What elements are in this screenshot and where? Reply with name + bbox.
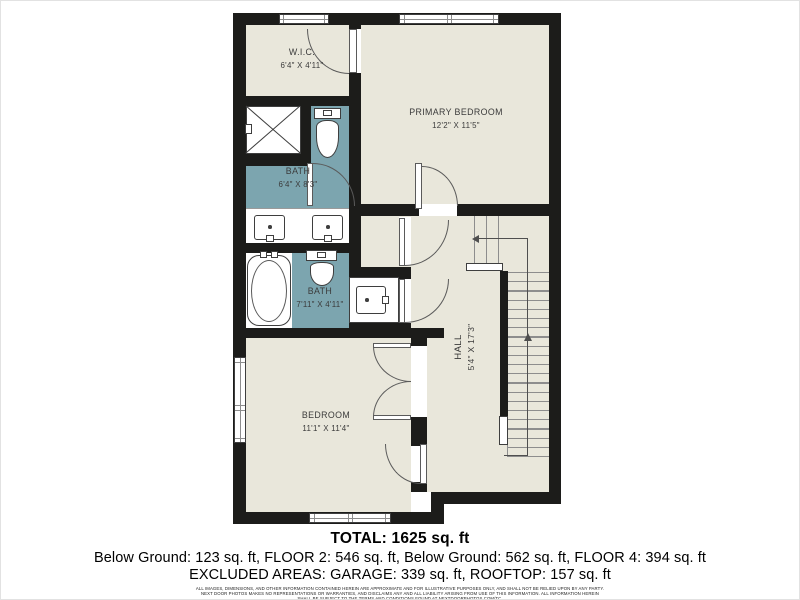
stair-tread-line bbox=[508, 428, 549, 429]
bathtub-faucet-icon bbox=[260, 251, 267, 258]
wall-bottom-right bbox=[431, 492, 561, 504]
stair-walk-line-horizontal bbox=[479, 238, 528, 239]
window-divider bbox=[235, 405, 245, 406]
vanity-sink-left-drain bbox=[268, 225, 272, 229]
niche-sink-faucet bbox=[382, 296, 389, 304]
window-divider bbox=[348, 514, 349, 522]
stair-tread-line bbox=[508, 364, 549, 365]
wall-bedroom-top bbox=[233, 328, 444, 338]
window-divider bbox=[314, 514, 315, 522]
wall-step-connector bbox=[431, 492, 444, 524]
room-name: BEDROOM bbox=[302, 409, 350, 422]
toilet-lower-button bbox=[317, 252, 326, 258]
window-pane-line bbox=[400, 19, 498, 20]
room-name: BATH bbox=[296, 285, 343, 298]
stair-tread-line bbox=[508, 272, 549, 273]
bathtub-inner bbox=[251, 260, 287, 322]
stair-bottom-jamb bbox=[499, 416, 508, 445]
window-divider bbox=[447, 15, 448, 23]
wall-hall-left-b bbox=[411, 417, 427, 446]
window-divider bbox=[404, 15, 405, 23]
window-divider bbox=[385, 514, 386, 522]
stair-tread-line bbox=[508, 419, 549, 420]
shower-head-icon bbox=[245, 124, 252, 134]
area-summary: TOTAL: 1625 sq. ft Below Ground: 123 sq.… bbox=[1, 530, 799, 600]
stair-tread-line bbox=[508, 373, 549, 374]
vanity-sink-right-faucet bbox=[324, 235, 332, 242]
window-divider bbox=[235, 438, 245, 439]
stair-tread-line bbox=[508, 382, 549, 383]
total-area-text: TOTAL: 1625 sq. ft bbox=[1, 530, 799, 548]
niche-sink-drain bbox=[365, 298, 369, 302]
room-dims: 7'11" X 4'11" bbox=[296, 298, 343, 311]
room-label-bedroom: BEDROOM 11'1" X 11'4" bbox=[302, 409, 350, 435]
stair-tread-line bbox=[508, 309, 549, 310]
bedroom-door-leaf bbox=[420, 444, 427, 484]
room-dims: 11'1" X 11'4" bbox=[302, 422, 350, 435]
wic-door-leaf bbox=[349, 29, 357, 73]
room-name: PRIMARY BEDROOM bbox=[409, 106, 503, 119]
primary-door-leaf bbox=[415, 163, 422, 209]
closet-door-jamb bbox=[411, 346, 427, 417]
floor-areas-text: Below Ground: 123 sq. ft, FLOOR 2: 546 s… bbox=[1, 550, 799, 566]
stair-up-arrow-left-icon bbox=[472, 235, 479, 243]
window-divider bbox=[493, 15, 494, 23]
excluded-areas-text: EXCLUDED AREAS: GARAGE: 339 sq. ft, ROOF… bbox=[1, 567, 799, 583]
stair-tread-line bbox=[508, 290, 549, 291]
stair-landing-nosing bbox=[466, 263, 503, 271]
window-pane-line bbox=[240, 358, 241, 442]
stair-tread-line bbox=[508, 300, 549, 301]
disclaimer-text: ALL IMAGES, DIMENSIONS, AND OTHER INFORM… bbox=[1, 586, 799, 600]
window-divider bbox=[235, 410, 245, 411]
stair-tread-line bbox=[508, 410, 549, 411]
stair-up-arrow-icon bbox=[524, 333, 532, 341]
window-divider bbox=[451, 15, 452, 23]
window-divider bbox=[235, 362, 245, 363]
stair-tread-line bbox=[508, 318, 549, 319]
window-divider bbox=[283, 15, 284, 23]
stair-tread-line bbox=[508, 346, 549, 347]
room-label-bath-lower: BATH 7'11" X 4'11" bbox=[296, 285, 343, 311]
room-name: W.I.C. bbox=[280, 46, 323, 59]
window-top-primary bbox=[399, 14, 499, 24]
room-dims: 6'4" X 4'11" bbox=[280, 59, 323, 72]
room-name: HALL bbox=[452, 324, 465, 371]
stair-tread-line bbox=[498, 216, 499, 264]
room-dims: 5'4" X 17'3" bbox=[465, 324, 478, 371]
room-label-wic: W.I.C. 6'4" X 4'11" bbox=[280, 46, 323, 72]
stair-tread-line bbox=[508, 438, 549, 439]
window-bottom-bedroom bbox=[309, 513, 391, 523]
stair-tread-line bbox=[508, 327, 549, 328]
room-label-bath-upper: BATH 6'4" X 8'3" bbox=[279, 165, 318, 191]
window-pane-line bbox=[280, 19, 328, 20]
wall-niche-bottom bbox=[361, 323, 411, 329]
stair-tread-line bbox=[508, 447, 549, 448]
vanity-sink-left-faucet bbox=[266, 235, 274, 242]
stair-tread-line bbox=[508, 401, 549, 402]
floor-plan-page: W.I.C. 6'4" X 4'11" PRIMARY BEDROOM 12'2… bbox=[0, 0, 800, 600]
stair-tread-line bbox=[508, 392, 549, 393]
room-dims: 6'4" X 8'3" bbox=[279, 178, 318, 191]
stair-walk-line-vertical bbox=[527, 238, 528, 456]
room-name: BATH bbox=[279, 165, 318, 178]
window-pane-line bbox=[310, 518, 390, 519]
window-left-bedroom bbox=[234, 357, 246, 443]
wall-wic-bottom bbox=[246, 96, 349, 106]
stair-tread-line bbox=[486, 216, 487, 264]
vanity-sink-right-drain bbox=[326, 225, 330, 229]
room-label-hall: HALL 5'4" X 17'3" bbox=[452, 324, 478, 371]
window-divider bbox=[352, 514, 353, 522]
wall-hall-left-a bbox=[411, 338, 427, 346]
wall-hall-top-right bbox=[457, 204, 549, 216]
wall-left bbox=[233, 13, 246, 524]
window-divider bbox=[324, 15, 325, 23]
stair-tread-line bbox=[508, 355, 549, 356]
room-dims: 12'2" X 11'5" bbox=[409, 119, 503, 132]
wall-stair-left bbox=[500, 271, 508, 416]
stair-tread-line bbox=[508, 281, 549, 282]
wall-hall-top-left bbox=[361, 204, 419, 216]
disclaimer-line: SHALL BE SUBJECT TO THE TERMS AND CONDIT… bbox=[1, 596, 799, 600]
stair-walk-line-bottom bbox=[504, 455, 528, 456]
window-top-wic bbox=[279, 14, 329, 24]
room-label-primary-bedroom: PRIMARY BEDROOM 12'2" X 11'5" bbox=[409, 106, 503, 132]
wall-right bbox=[549, 13, 561, 504]
toilet-upper-button bbox=[323, 110, 332, 116]
bathtub-faucet-icon bbox=[271, 251, 278, 258]
